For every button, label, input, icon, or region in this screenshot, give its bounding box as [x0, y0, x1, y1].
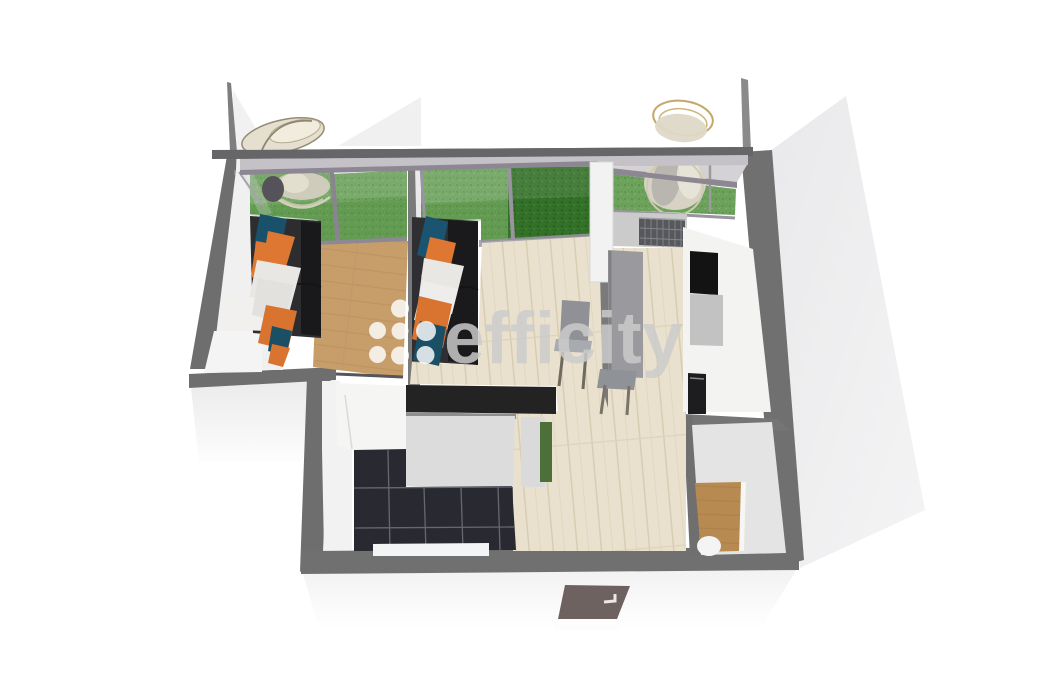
svg-text:efficity: efficity: [444, 298, 683, 379]
